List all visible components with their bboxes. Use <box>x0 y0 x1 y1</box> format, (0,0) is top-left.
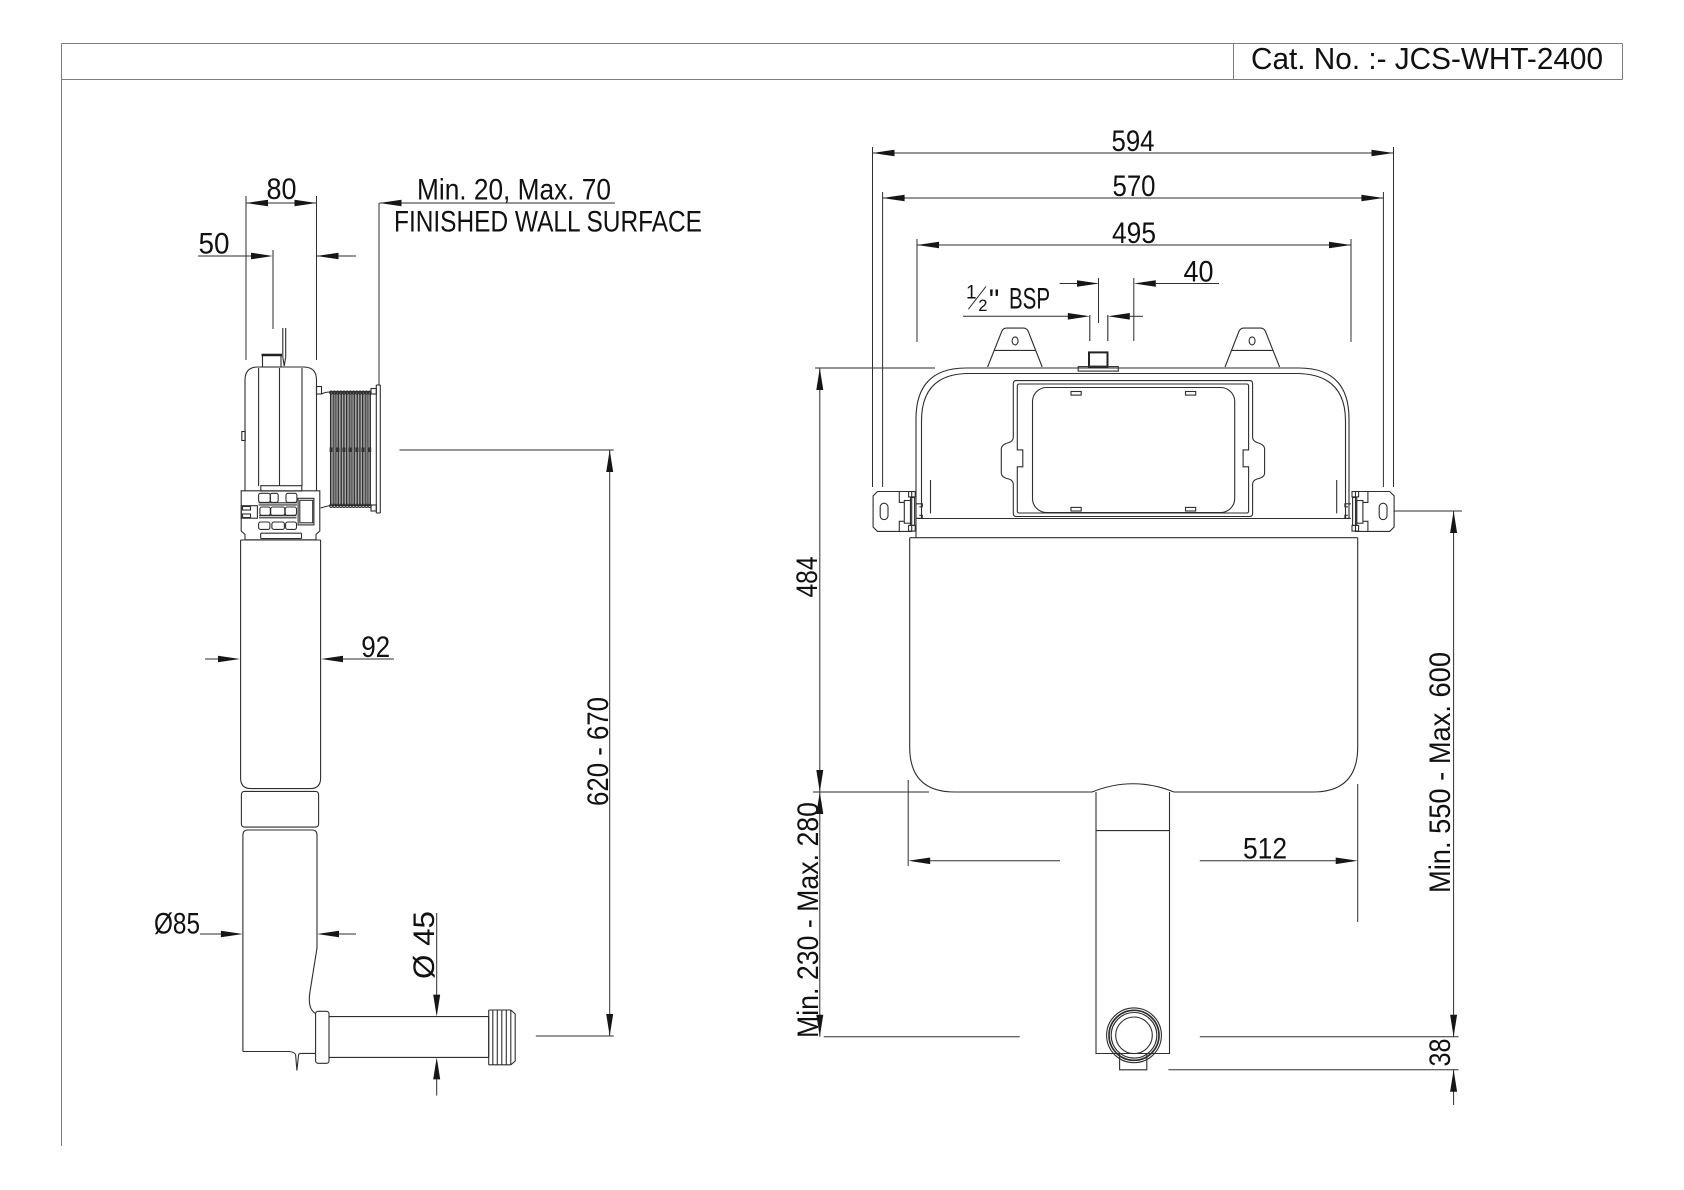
svg-text:484: 484 <box>791 557 824 598</box>
svg-text:2: 2 <box>978 297 987 315</box>
svg-text:FINISHED WALL SURFACE: FINISHED WALL SURFACE <box>394 206 702 239</box>
svg-text:Min. 550 - Max. 600: Min. 550 - Max. 600 <box>1424 652 1457 893</box>
svg-text:Cat. No. :- JCS-WHT-2400: Cat. No. :- JCS-WHT-2400 <box>1251 41 1603 76</box>
svg-text:38: 38 <box>1424 1039 1457 1067</box>
svg-text:Ø 45: Ø 45 <box>408 911 441 979</box>
svg-text:Min. 20, Max. 70: Min. 20, Max. 70 <box>417 174 611 207</box>
svg-text:": " <box>989 284 1000 317</box>
svg-text:Ø85: Ø85 <box>154 908 200 941</box>
svg-text:BSP: BSP <box>1009 283 1050 316</box>
svg-text:80: 80 <box>267 173 297 206</box>
